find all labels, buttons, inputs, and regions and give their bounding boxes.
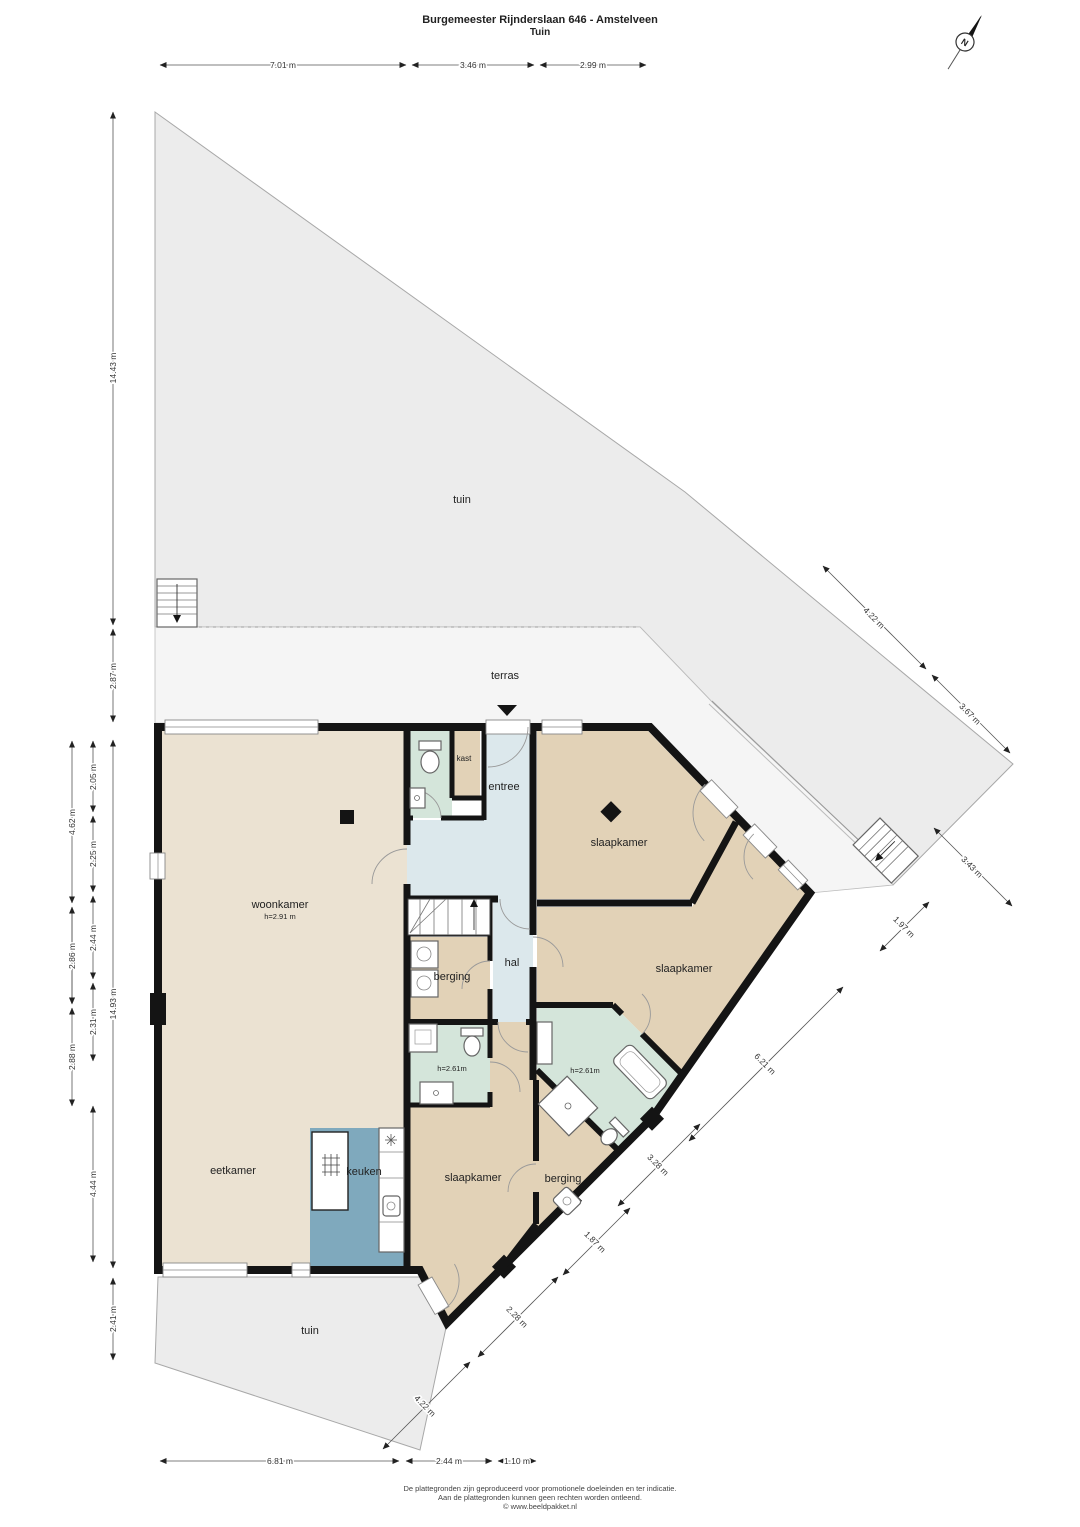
bathroom-height-label: h=2.61m — [570, 1066, 599, 1075]
wall-pier — [150, 993, 166, 1025]
footer-disclaimer: De plattegronden zijn geproduceerd voor … — [0, 1484, 1080, 1511]
dimension-label: 2.44 m — [436, 1456, 462, 1466]
living-room-label: woonkamer — [251, 899, 309, 911]
entry-label: entree — [488, 781, 519, 793]
dimension-label: 7.01 m — [270, 60, 296, 70]
garden-label: tuin — [453, 494, 471, 506]
window — [163, 1263, 247, 1277]
footer-line: © www.beeldpakket.nl — [0, 1502, 1080, 1511]
dishwasher-icon — [383, 1196, 400, 1216]
shower-icon — [420, 1082, 453, 1104]
dimension-label: 2.05 m — [88, 764, 98, 790]
dimension-label: 2.99 m — [580, 60, 606, 70]
dimension-label: 1.87 m — [582, 1229, 607, 1254]
dimension-label: 2.25 m — [88, 841, 98, 867]
dimension-label: 2.88 m — [67, 1044, 77, 1070]
bedroom-label: slaapkamer — [445, 1172, 502, 1184]
kitchen-label: keuken — [346, 1166, 381, 1178]
toilet-icon — [419, 741, 441, 773]
closet-floor — [452, 731, 480, 797]
dimension-label: 3.46 m — [460, 60, 486, 70]
dimension-label: 4.44 m — [88, 1171, 98, 1197]
bedroom-label: slaapkamer — [656, 963, 713, 975]
closet-label: kast — [457, 754, 472, 763]
dimension-label: 2.86 m — [67, 943, 77, 969]
garden-label: tuin — [301, 1325, 319, 1337]
dimension-label: 3.43 m — [959, 854, 984, 879]
sink-icon — [409, 1024, 437, 1052]
dimension-label: 6.21 m — [752, 1051, 777, 1076]
hall-label: hal — [505, 957, 520, 969]
floorplan-page: Burgemeester Rijnderslaan 646 - Amstelve… — [0, 0, 1080, 1527]
window — [150, 853, 165, 879]
bedroom-label: slaapkamer — [591, 837, 648, 849]
dimension-label: 4.62 m — [67, 809, 77, 835]
bathroom-cabinet — [537, 1022, 552, 1064]
dimension-label: 14.43 m — [108, 353, 118, 384]
washer-icon — [411, 941, 438, 968]
living-room-height-label: h=2.91 m — [264, 912, 295, 921]
garden-area-bottom — [155, 1277, 447, 1450]
dimension-label: 2.28 m — [504, 1304, 529, 1329]
stairs-garden-topleft — [157, 579, 197, 627]
kitchen-island — [312, 1132, 348, 1210]
dimension-label: 4.22 m — [861, 605, 886, 630]
terrace-label: terras — [491, 670, 520, 682]
dimension-label: 1.10 m — [504, 1456, 530, 1466]
window — [292, 1263, 310, 1277]
dimension-label: 2.44 m — [88, 925, 98, 951]
footer-line: De plattegronden zijn geproduceerd voor … — [0, 1484, 1080, 1493]
dining-room-label: eetkamer — [210, 1165, 256, 1177]
kitchen-appliance-strip — [379, 1128, 404, 1252]
column — [340, 810, 354, 824]
stairs-interior — [408, 899, 490, 935]
floorplan-canvas: tuin terras tuin woonkamer h=2.91 m eetk… — [0, 0, 1080, 1527]
window — [542, 720, 582, 734]
dimension-label: 2.41 m — [108, 1306, 118, 1332]
dimension-label: 3.28 m — [645, 1152, 670, 1177]
window — [165, 720, 318, 734]
compass-icon: N — [940, 10, 991, 75]
stove-icon — [322, 1154, 340, 1176]
dimension-label: 2.87 m — [108, 663, 118, 689]
dimension-label: 6.81 m — [267, 1456, 293, 1466]
storage-label: berging — [545, 1173, 582, 1185]
storage-label: berging — [434, 971, 471, 983]
footer-line: Aan de plattegronden kunnen geen rechten… — [0, 1493, 1080, 1502]
bathroom-height-label: h=2.61m — [437, 1064, 466, 1073]
sink-icon — [410, 788, 425, 808]
dimension-label: 14.93 m — [108, 989, 118, 1020]
dimension-label: 2.31 m — [88, 1009, 98, 1035]
